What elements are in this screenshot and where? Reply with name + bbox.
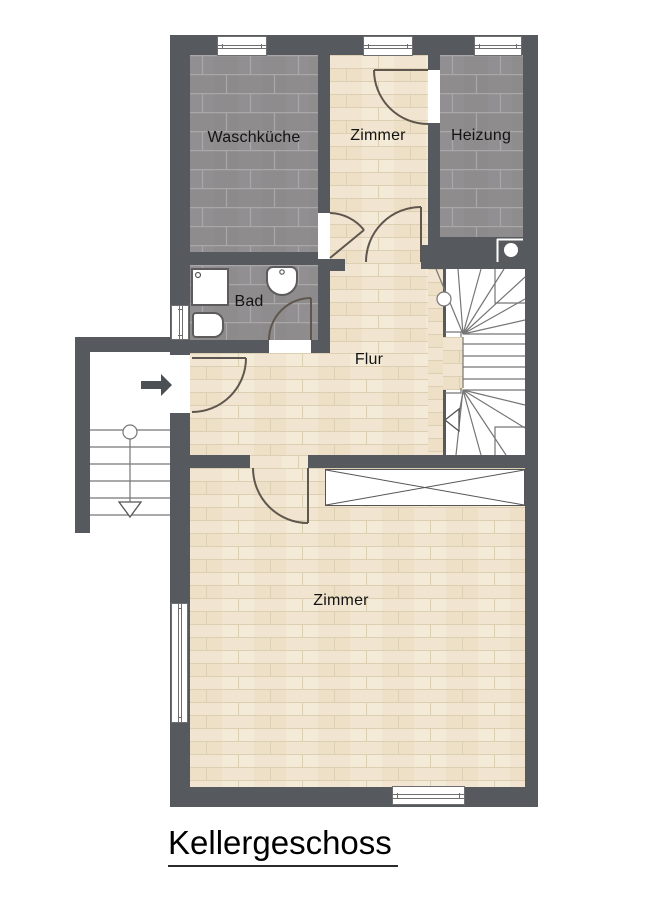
- zimmer-bottom-floor: [190, 468, 525, 787]
- zimmer-bottom-door-opening: [250, 455, 308, 468]
- door-post-left: [318, 259, 345, 271]
- waschkueche-door-opening: [318, 213, 330, 259]
- window-top-1: [217, 36, 267, 56]
- label-flur: Flur: [355, 351, 383, 369]
- lightwell-interior: [90, 352, 170, 530]
- storage-crossbox: [325, 469, 525, 506]
- heizung-door-opening: [428, 70, 440, 123]
- stair-landing-pocket: [443, 337, 463, 390]
- door-post-right: [421, 245, 455, 269]
- flur-floor: [190, 353, 443, 455]
- label-waschkueche: Waschküche: [208, 129, 301, 147]
- window-zimmer-bottom: [392, 786, 465, 805]
- shower-tray: [191, 268, 229, 306]
- window-top-3: [474, 36, 522, 56]
- lightwell-top-wall: [75, 337, 170, 352]
- label-bad: Bad: [234, 293, 263, 311]
- flur-east-strip-floor: [428, 269, 443, 455]
- lightwell-left-wall: [75, 337, 90, 533]
- label-zimmer-top: Zimmer: [350, 127, 405, 145]
- window-bad: [171, 305, 189, 340]
- floorplan-kellergeschoss: Waschküche Zimmer Heizung Bad Flur Zimme…: [0, 0, 651, 900]
- window-zimmer-left: [171, 603, 188, 723]
- window-top-2: [363, 36, 413, 56]
- waschkueche-floor: [190, 55, 318, 252]
- page-title: Kellergeschoss: [168, 824, 398, 867]
- heizung-floor: [440, 55, 523, 237]
- label-heizung: Heizung: [451, 127, 511, 145]
- entry-door-opening: [170, 355, 190, 413]
- label-zimmer-bottom: Zimmer: [313, 592, 368, 610]
- toilet: [192, 312, 224, 338]
- bad-door-opening: [269, 340, 311, 353]
